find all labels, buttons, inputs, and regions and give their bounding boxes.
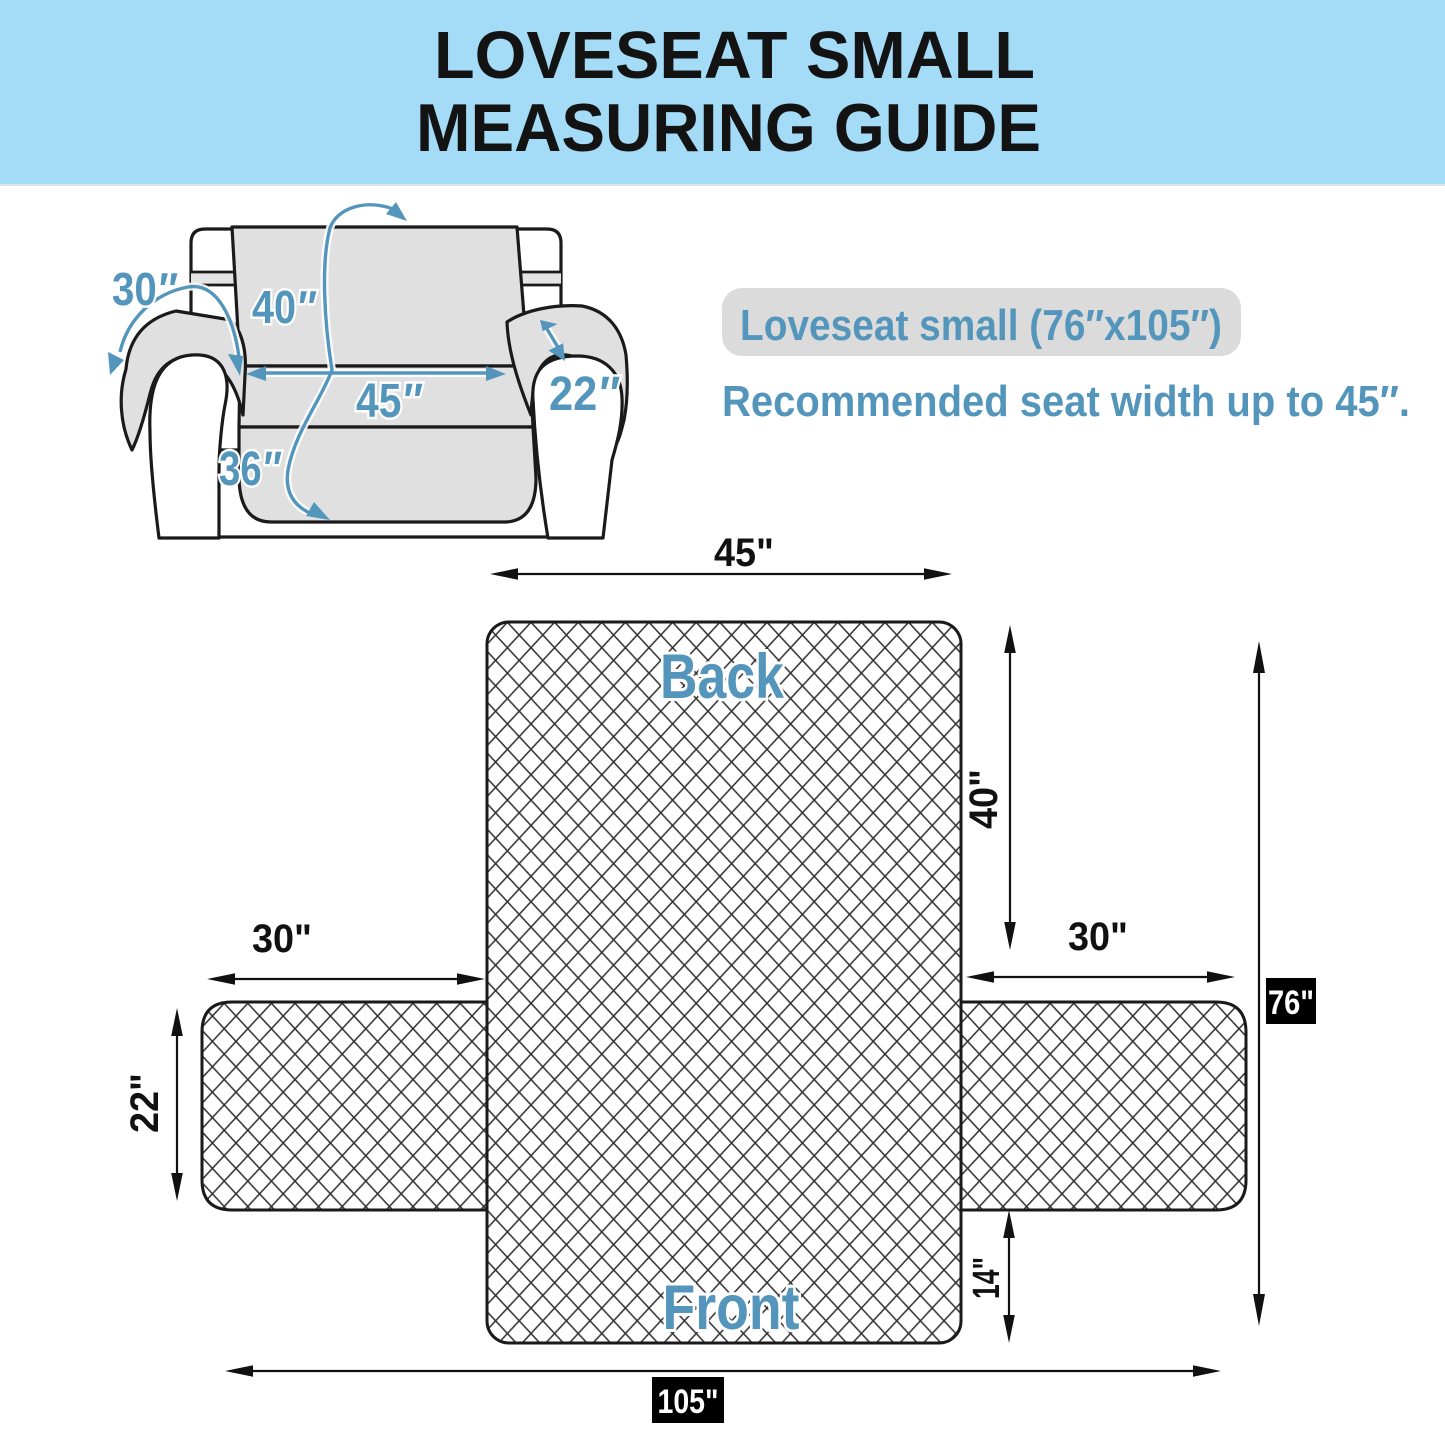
svg-text:36″: 36″ xyxy=(219,443,282,496)
svg-text:22": 22" xyxy=(123,1073,167,1133)
svg-text:45″: 45″ xyxy=(356,375,423,428)
svg-text:Back: Back xyxy=(660,642,785,712)
svg-text:22″: 22″ xyxy=(549,368,620,421)
svg-text:LOVESEAT SMALL: LOVESEAT SMALL xyxy=(434,18,1035,93)
svg-text:Recommended seat width up to 4: Recommended seat width up to 45″. xyxy=(722,377,1410,426)
svg-text:76": 76" xyxy=(1268,984,1314,1022)
svg-text:40": 40" xyxy=(962,769,1006,829)
svg-text:Loveseat small (76″x105″): Loveseat small (76″x105″) xyxy=(740,301,1222,350)
svg-text:14": 14" xyxy=(966,1257,1008,1299)
svg-text:40″: 40″ xyxy=(252,281,317,333)
svg-text:105": 105" xyxy=(658,1383,719,1421)
svg-text:30": 30" xyxy=(1068,915,1128,959)
svg-text:30": 30" xyxy=(252,917,312,961)
svg-text:MEASURING GUIDE: MEASURING GUIDE xyxy=(416,90,1041,166)
svg-text:Front: Front xyxy=(663,1273,800,1343)
svg-text:30″: 30″ xyxy=(112,263,178,315)
svg-text:45": 45" xyxy=(714,531,774,575)
